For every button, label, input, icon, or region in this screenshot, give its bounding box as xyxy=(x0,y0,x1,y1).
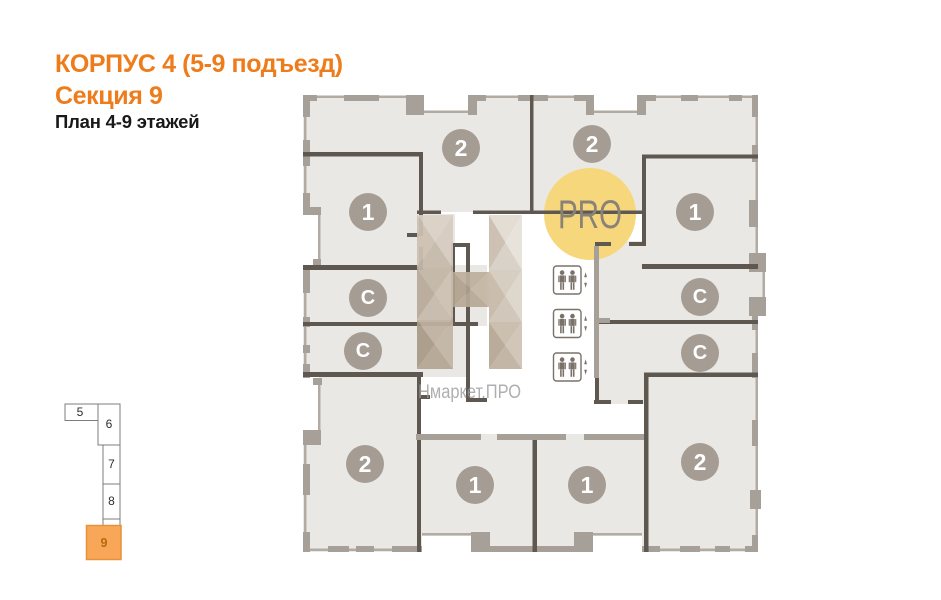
svg-text:С: С xyxy=(693,342,707,364)
svg-text:С: С xyxy=(361,287,375,309)
svg-text:Нмаркет.ПРО: Нмаркет.ПРО xyxy=(418,382,521,403)
svg-text:9: 9 xyxy=(101,536,108,550)
svg-text:1: 1 xyxy=(362,199,375,225)
svg-text:5: 5 xyxy=(77,405,84,419)
svg-text:С: С xyxy=(693,286,707,308)
svg-text:1: 1 xyxy=(689,199,702,225)
svg-text:1: 1 xyxy=(469,472,482,498)
svg-text:PRO: PRO xyxy=(558,193,622,237)
svg-text:2: 2 xyxy=(694,449,707,475)
svg-text:С: С xyxy=(356,340,370,362)
svg-text:1: 1 xyxy=(581,472,594,498)
svg-text:8: 8 xyxy=(108,494,115,508)
svg-text:2: 2 xyxy=(455,135,468,161)
svg-text:2: 2 xyxy=(359,451,372,477)
svg-text:7: 7 xyxy=(108,457,115,471)
svg-text:2: 2 xyxy=(586,131,599,157)
svg-text:6: 6 xyxy=(106,417,113,431)
